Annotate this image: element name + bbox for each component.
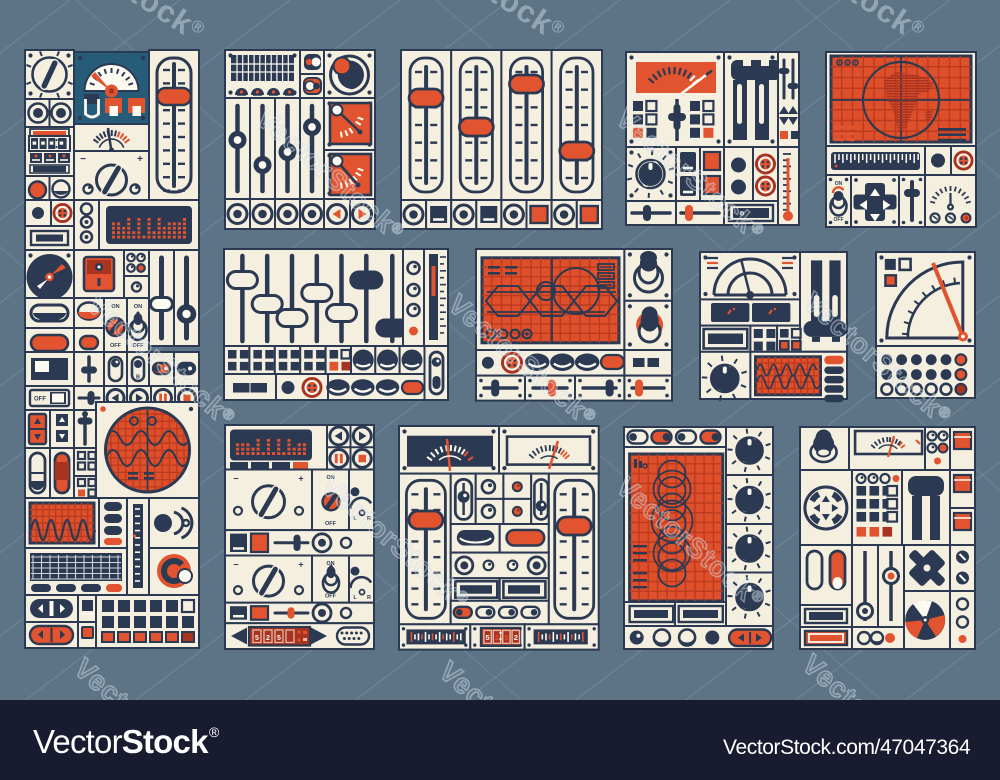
svg-text:OFF: OFF	[34, 397, 46, 403]
svg-text:VectorStock: VectorStock	[33, 723, 209, 760]
svg-text:2: 2	[266, 635, 270, 642]
svg-text:OFF: OFF	[325, 594, 337, 600]
svg-text:VectorStock.com/47047364: VectorStock.com/47047364	[723, 736, 971, 759]
svg-text:B: B	[136, 375, 140, 381]
svg-text:®: ®	[209, 724, 220, 740]
svg-text:+: +	[137, 154, 143, 165]
svg-text:OFF: OFF	[325, 521, 337, 527]
svg-text:+: +	[298, 474, 303, 484]
svg-text:5: 5	[255, 635, 259, 642]
svg-text:−: −	[233, 474, 238, 484]
svg-text:−: −	[233, 560, 238, 570]
svg-text:2: 2	[514, 633, 518, 642]
svg-text:+: +	[298, 560, 303, 570]
svg-text:2: 2	[495, 633, 499, 642]
svg-text:OFF: OFF	[834, 217, 844, 223]
svg-text:5: 5	[277, 635, 281, 642]
svg-text:ON: ON	[134, 304, 142, 310]
svg-text:R: R	[367, 595, 371, 601]
svg-text:5: 5	[504, 633, 508, 642]
svg-text:−: −	[80, 154, 86, 165]
svg-text:5: 5	[486, 633, 490, 642]
